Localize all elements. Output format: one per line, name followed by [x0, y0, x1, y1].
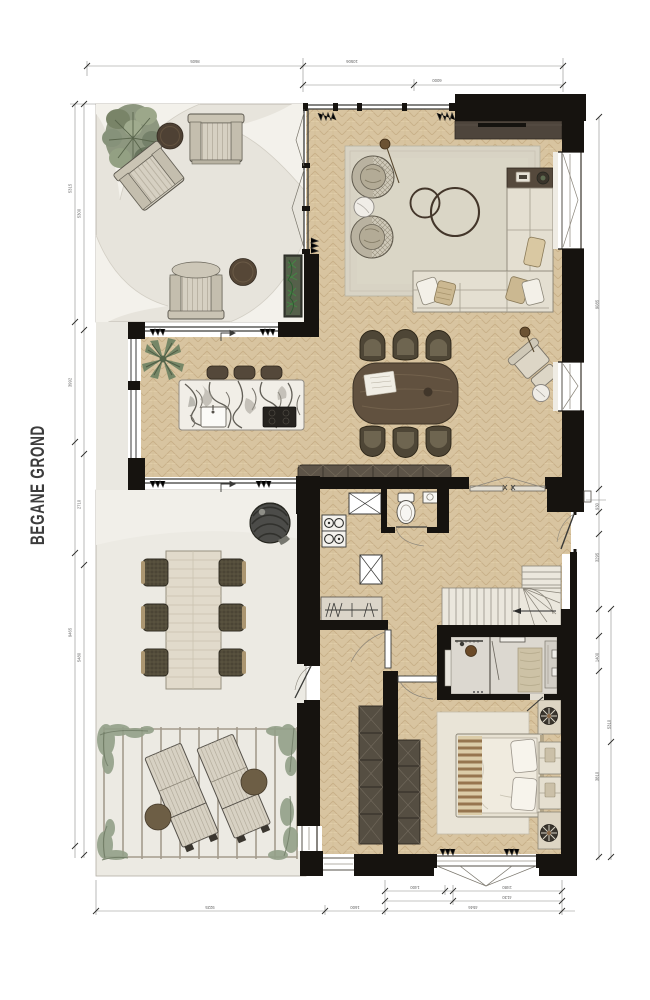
svg-text:930: 930 — [595, 502, 600, 510]
svg-text:4130: 4130 — [502, 895, 512, 900]
svg-text:5480: 5480 — [77, 652, 82, 662]
svg-text:8605: 8605 — [190, 59, 200, 64]
svg-text:9465: 9465 — [68, 627, 73, 637]
svg-text:5300: 5300 — [77, 208, 82, 218]
svg-text:1600: 1600 — [350, 905, 360, 910]
svg-text:10506: 10506 — [346, 59, 358, 64]
svg-text:9225: 9225 — [205, 905, 215, 910]
svg-text:3810: 3810 — [595, 771, 600, 781]
svg-text:BEGANE GROND: BEGANE GROND — [28, 425, 49, 545]
svg-text:3295: 3295 — [595, 552, 600, 562]
svg-text:1400: 1400 — [595, 652, 600, 662]
svg-text:2480: 2480 — [502, 885, 512, 890]
svg-text:5315: 5315 — [68, 183, 73, 193]
svg-text:3992: 3992 — [68, 377, 73, 387]
svg-text:2710: 2710 — [77, 499, 82, 509]
svg-text:6000: 6000 — [432, 78, 442, 83]
svg-text:5310: 5310 — [607, 719, 612, 729]
svg-text:9085: 9085 — [595, 299, 600, 309]
svg-text:1400: 1400 — [410, 885, 420, 890]
svg-text:4546: 4546 — [468, 905, 478, 910]
